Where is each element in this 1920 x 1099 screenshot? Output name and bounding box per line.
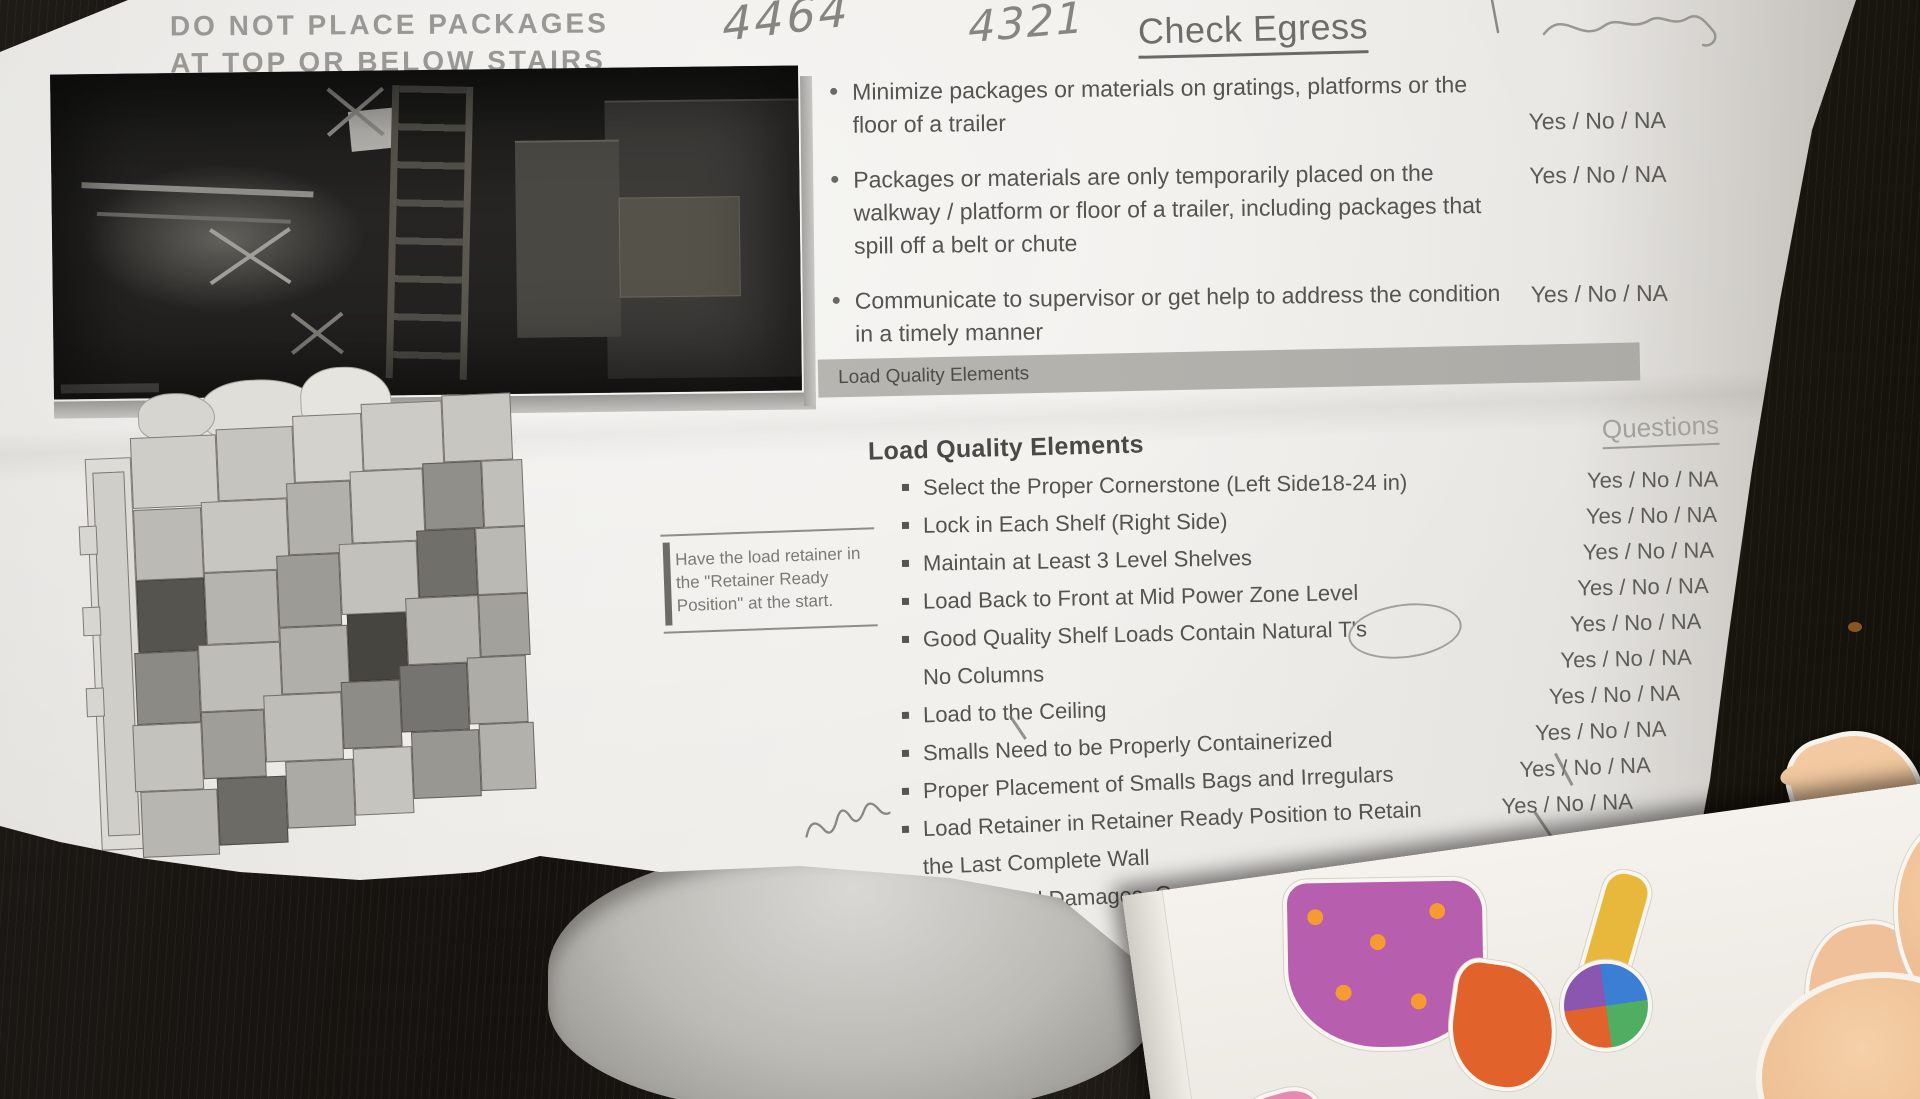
egress-item-text: Communicate to supervisor or get help to… — [855, 280, 1501, 347]
checklist-item-row: Select the Proper Cornerstone (Left Side… — [902, 465, 1792, 501]
load-wall-box — [215, 426, 295, 501]
callout-side-rule — [663, 542, 673, 625]
square-bullet-icon — [902, 712, 909, 719]
handwritten-note-scribble — [793, 781, 899, 860]
egress-item-text: Minimize packages or materials on gratin… — [852, 71, 1467, 138]
load-wall-box — [133, 722, 204, 792]
load-wall-box — [416, 528, 478, 597]
load-wall-box — [411, 729, 482, 799]
load-wall-box — [352, 746, 414, 815]
load-wall-box — [478, 593, 531, 657]
square-bullet-icon — [902, 788, 909, 795]
load-wall-diagram — [82, 372, 557, 869]
load-wall-box — [340, 680, 402, 749]
egress-item-row: Minimize packages or materials on gratin… — [828, 65, 1734, 142]
checklist-item-row: Lock in Each Shelf (Right Side) Yes / No… — [902, 500, 1792, 539]
square-bullet-icon — [902, 598, 909, 605]
load-wall-box — [442, 393, 513, 463]
checklist-item-text: Smalls Need to be Properly Containerized — [923, 726, 1333, 766]
handwritten-number-right: 4321 — [968, 0, 1086, 53]
load-wall-box — [276, 553, 343, 627]
yes-no-na-options: Yes / No / NA — [1535, 713, 1741, 747]
load-wall-box — [481, 459, 525, 528]
photo-shadow-right — [800, 76, 816, 406]
rainbow-ball-sticker — [1554, 954, 1658, 1058]
load-wall-box — [399, 662, 470, 732]
load-wall-box — [264, 692, 344, 762]
load-wall-box — [360, 400, 445, 470]
checklist-item-text: the Last Complete Wall — [922, 844, 1150, 880]
round-bullet-icon — [831, 176, 838, 183]
load-wall-box — [140, 788, 220, 858]
load-wall-box — [475, 526, 528, 595]
square-bullet-icon — [902, 484, 909, 491]
load-wall-box — [82, 607, 101, 636]
square-bullet-icon — [902, 560, 909, 567]
egress-item-text: Packages or materials are only temporari… — [853, 160, 1481, 259]
round-bullet-icon — [833, 297, 840, 304]
yes-no-na-options: Yes / No / NA — [1501, 785, 1707, 820]
load-wall-box — [279, 625, 350, 695]
yes-no-na-options: Yes / No / NA — [1531, 276, 1736, 312]
load-wall-box — [217, 776, 288, 846]
section-bar-label: Load Quality Elements — [838, 363, 1030, 389]
egress-item-row: Communicate to supervisor or get help to… — [831, 274, 1737, 351]
checklist-item-row: Maintain at Least 3 Level Shelves Yes / … — [902, 535, 1792, 577]
checklist-item-text: Load Back to Front at Mid Power Zone Lev… — [923, 579, 1359, 615]
checklist-item-text: Good Quality Shelf Loads Contain Natural… — [923, 615, 1368, 652]
pink-sticker — [1236, 1080, 1329, 1099]
load-wall-box — [204, 570, 280, 645]
checklist-item-text: Proper Placement of Smalls Bags and Irre… — [923, 761, 1394, 805]
warning-title-line1: DO NOT PLACE PACKAGES — [170, 4, 609, 44]
load-wall-box — [285, 758, 356, 828]
checklist-item-text: Lock in Each Shelf (Right Side) — [923, 508, 1228, 539]
yes-no-na-options: Yes / No / NA — [1528, 103, 1733, 139]
questions-column-header: Questions — [1601, 410, 1719, 449]
clown-boot-sticker — [1440, 955, 1565, 1097]
square-bullet-icon — [902, 750, 909, 757]
warehouse-photo-frame — [52, 70, 800, 395]
handwritten-number-left: 4464 — [722, 0, 851, 52]
square-bullet-icon — [902, 826, 909, 833]
load-wall-box — [422, 461, 484, 530]
photo-vignette — [50, 65, 802, 399]
load-wall-box — [132, 507, 203, 582]
square-bullet-icon — [902, 636, 909, 643]
load-quality-heading: Load Quality Elements — [868, 430, 1144, 466]
square-bullet-icon — [902, 522, 909, 529]
yes-no-na-options: Yes / No / NA — [1529, 157, 1734, 193]
wood-speck — [1848, 622, 1862, 632]
load-wall-box — [129, 434, 218, 509]
load-wall-box — [405, 595, 481, 665]
warehouse-photo — [50, 65, 802, 399]
page-title: Check Egress — [1137, 5, 1368, 59]
handwritten-signature-scribble — [1452, 0, 1752, 58]
yes-no-na-options: Yes / No / NA — [1519, 749, 1725, 783]
callout-text: Have the load retainer in the "Retainer … — [675, 544, 861, 615]
load-wall-box — [467, 655, 529, 724]
checklist-item-text: Select the Proper Cornerstone (Left Side… — [923, 469, 1408, 501]
egress-checklist: Minimize packages or materials on gratin… — [828, 65, 1736, 351]
load-wall-box — [136, 578, 207, 653]
load-retainer-callout: Have the load retainer in the "Retainer … — [660, 527, 877, 633]
load-wall-box — [134, 650, 201, 724]
load-wall-box — [349, 468, 425, 543]
egress-item-row: Packages or materials are only temporari… — [829, 153, 1735, 263]
photographed-checklist-document: DO NOT PLACE PACKAGES AT TOP OR BELOW ST… — [0, 0, 1920, 1099]
load-wall-box — [201, 710, 268, 780]
load-quality-section-bar: Load Quality Elements — [818, 342, 1641, 397]
round-bullet-icon — [830, 88, 837, 95]
load-wall-box — [79, 525, 98, 554]
checklist-item-text: No Columns — [923, 660, 1045, 690]
load-wall-box — [86, 688, 105, 717]
checklist-item-text: Maintain at Least 3 Level Shelves — [923, 544, 1252, 577]
load-wall-box — [479, 722, 536, 791]
